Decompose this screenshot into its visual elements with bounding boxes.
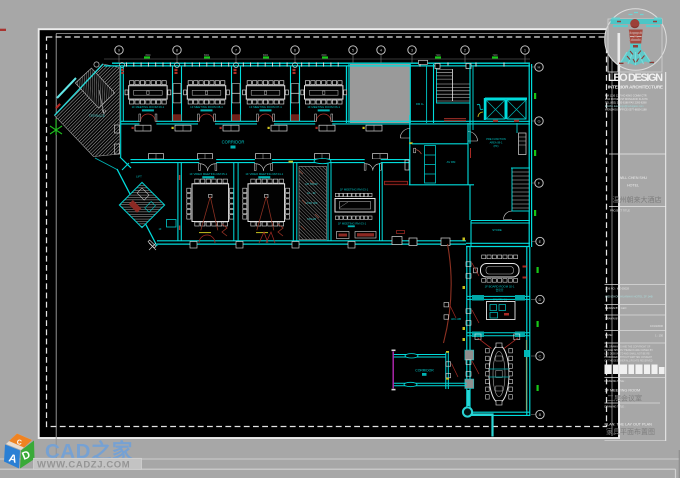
svg-text:1F BOARD ROOM 02-1: 1F BOARD ROOM 02-1 bbox=[485, 285, 515, 289]
svg-text:PLAN: THE LAY OUT PLAN: PLAN: THE LAY OUT PLAN bbox=[605, 423, 653, 427]
svg-text:D: D bbox=[539, 297, 542, 302]
svg-text:B: B bbox=[539, 412, 542, 417]
svg-text:CORRIDOR: CORRIDOR bbox=[222, 140, 245, 145]
svg-text:HOTEL: HOTEL bbox=[627, 184, 639, 188]
svg-text:RM 1L: RM 1L bbox=[416, 102, 425, 106]
svg-text:1F: 1F bbox=[158, 227, 161, 231]
svg-text:C: C bbox=[16, 439, 22, 447]
svg-text:PRODUCED WITHOUT WRITTEN CONSE: PRODUCED WITHOUT WRITTEN CONSENT bbox=[605, 357, 653, 359]
svg-text:1F MEETING ROOM: 1F MEETING ROOM bbox=[605, 389, 641, 393]
svg-text:DATE :: DATE : bbox=[605, 333, 613, 337]
svg-text:E: E bbox=[539, 239, 542, 244]
svg-text:WENZHOU OFFICE 0577-8839-1188: WENZHOU OFFICE 0577-8839-1188 bbox=[605, 109, 647, 112]
svg-text:DESIGN BY : LEO: DESIGN BY : LEO bbox=[605, 306, 626, 310]
svg-text:PRE FUNCTION: PRE FUNCTION bbox=[486, 137, 506, 141]
svg-text:OF THE DESIGNER ALL RIGHTS RE: OF THE DESIGNER ALL RIGHTS RESERVED bbox=[605, 360, 653, 363]
svg-text:WENZHOU HUANHAI HOTEL 2F 1#B: WENZHOU HUANHAI HOTEL 2F 1#B bbox=[605, 295, 653, 299]
svg-text:1F VIDEO MEETING RM 04-1: 1F VIDEO MEETING RM 04-1 bbox=[245, 172, 283, 176]
svg-text:150x28: 150x28 bbox=[307, 217, 316, 221]
svg-text:ALL DRAWINGS AND THE COPYRIGHT: ALL DRAWINGS AND THE COPYRIGHT OF bbox=[605, 346, 651, 349]
svg-text:H: H bbox=[538, 65, 541, 70]
svg-text:(PF): (PF) bbox=[493, 144, 498, 148]
svg-text:1F MEETING RM 03-1: 1F MEETING RM 03-1 bbox=[338, 221, 367, 225]
svg-text:会议室: 会议室 bbox=[496, 288, 504, 292]
svg-text:家具平面布置图: 家具平面布置图 bbox=[606, 427, 655, 436]
svg-text:CORRIDOR: CORRIDOR bbox=[415, 369, 434, 373]
svg-text:16/10/2006: 16/10/2006 bbox=[650, 324, 664, 328]
svg-text:DRAWING TITLE :: DRAWING TITLE : bbox=[605, 380, 626, 383]
svg-text:VOID 009: VOID 009 bbox=[306, 201, 318, 205]
svg-text:1F VIDEO MEETING RM 05-1: 1F VIDEO MEETING RM 05-1 bbox=[189, 172, 227, 176]
svg-text:LEO DESIGN LTD AND SHALL NOT B: LEO DESIGN LTD AND SHALL NOT BE RE- bbox=[605, 353, 651, 356]
svg-text:C: C bbox=[539, 354, 542, 359]
svg-text:INTERIOR ARCHITECTURE: INTERIOR ARCHITECTURE bbox=[608, 84, 663, 89]
svg-text:JOB NO : WZ-05028: JOB NO : WZ-05028 bbox=[605, 287, 629, 291]
svg-text:1F MEETING ROOM 07-1: 1F MEETING ROOM 07-1 bbox=[249, 105, 282, 109]
svg-text:WILL CHEN SHU: WILL CHEN SHU bbox=[619, 176, 647, 180]
svg-text:STORE: STORE bbox=[492, 228, 502, 232]
svg-text:1F - 2F: 1F - 2F bbox=[307, 191, 316, 195]
svg-text:DRAWING TITLE :: DRAWING TITLE : bbox=[605, 406, 626, 409]
svg-text:1F MEETING ROOM 08-1: 1F MEETING ROOM 08-1 bbox=[190, 105, 223, 109]
svg-text:DRAWN BY :: DRAWN BY : bbox=[605, 317, 621, 321]
svg-text:G: G bbox=[537, 119, 540, 124]
svg-text:TERRACE: TERRACE bbox=[89, 114, 106, 118]
svg-text:1F MEETING ROOM 06-1: 1F MEETING ROOM 06-1 bbox=[307, 105, 340, 109]
svg-text:温州朝来大酒店: 温州朝来大酒店 bbox=[613, 195, 662, 204]
svg-text:LEO DESIGN: LEO DESIGN bbox=[608, 72, 663, 84]
svg-text:DESIGN SHOWN THEREON ARE OWNED: DESIGN SHOWN THEREON ARE OWNED BY bbox=[605, 349, 654, 352]
svg-text:1F MEETING ROOM 09-1: 1F MEETING ROOM 09-1 bbox=[132, 105, 165, 109]
svg-text:WWW.CADZJ.COM: WWW.CADZJ.COM bbox=[37, 459, 130, 470]
svg-text:PROJECT TITLE: PROJECT TITLE bbox=[610, 209, 630, 213]
svg-text:1 : 150: 1 : 150 bbox=[655, 334, 663, 338]
svg-text:1F MEETING RM 03-1: 1F MEETING RM 03-1 bbox=[340, 188, 369, 192]
svg-text:AREA 08-1: AREA 08-1 bbox=[490, 141, 503, 145]
svg-text:UP STAIR: UP STAIR bbox=[305, 182, 317, 186]
svg-text:AV RM: AV RM bbox=[447, 160, 456, 164]
svg-text:LIFT: LIFT bbox=[136, 175, 142, 179]
svg-text:二层会议室: 二层会议室 bbox=[607, 394, 642, 403]
svg-text:PANTRY 01: PANTRY 01 bbox=[493, 297, 507, 301]
